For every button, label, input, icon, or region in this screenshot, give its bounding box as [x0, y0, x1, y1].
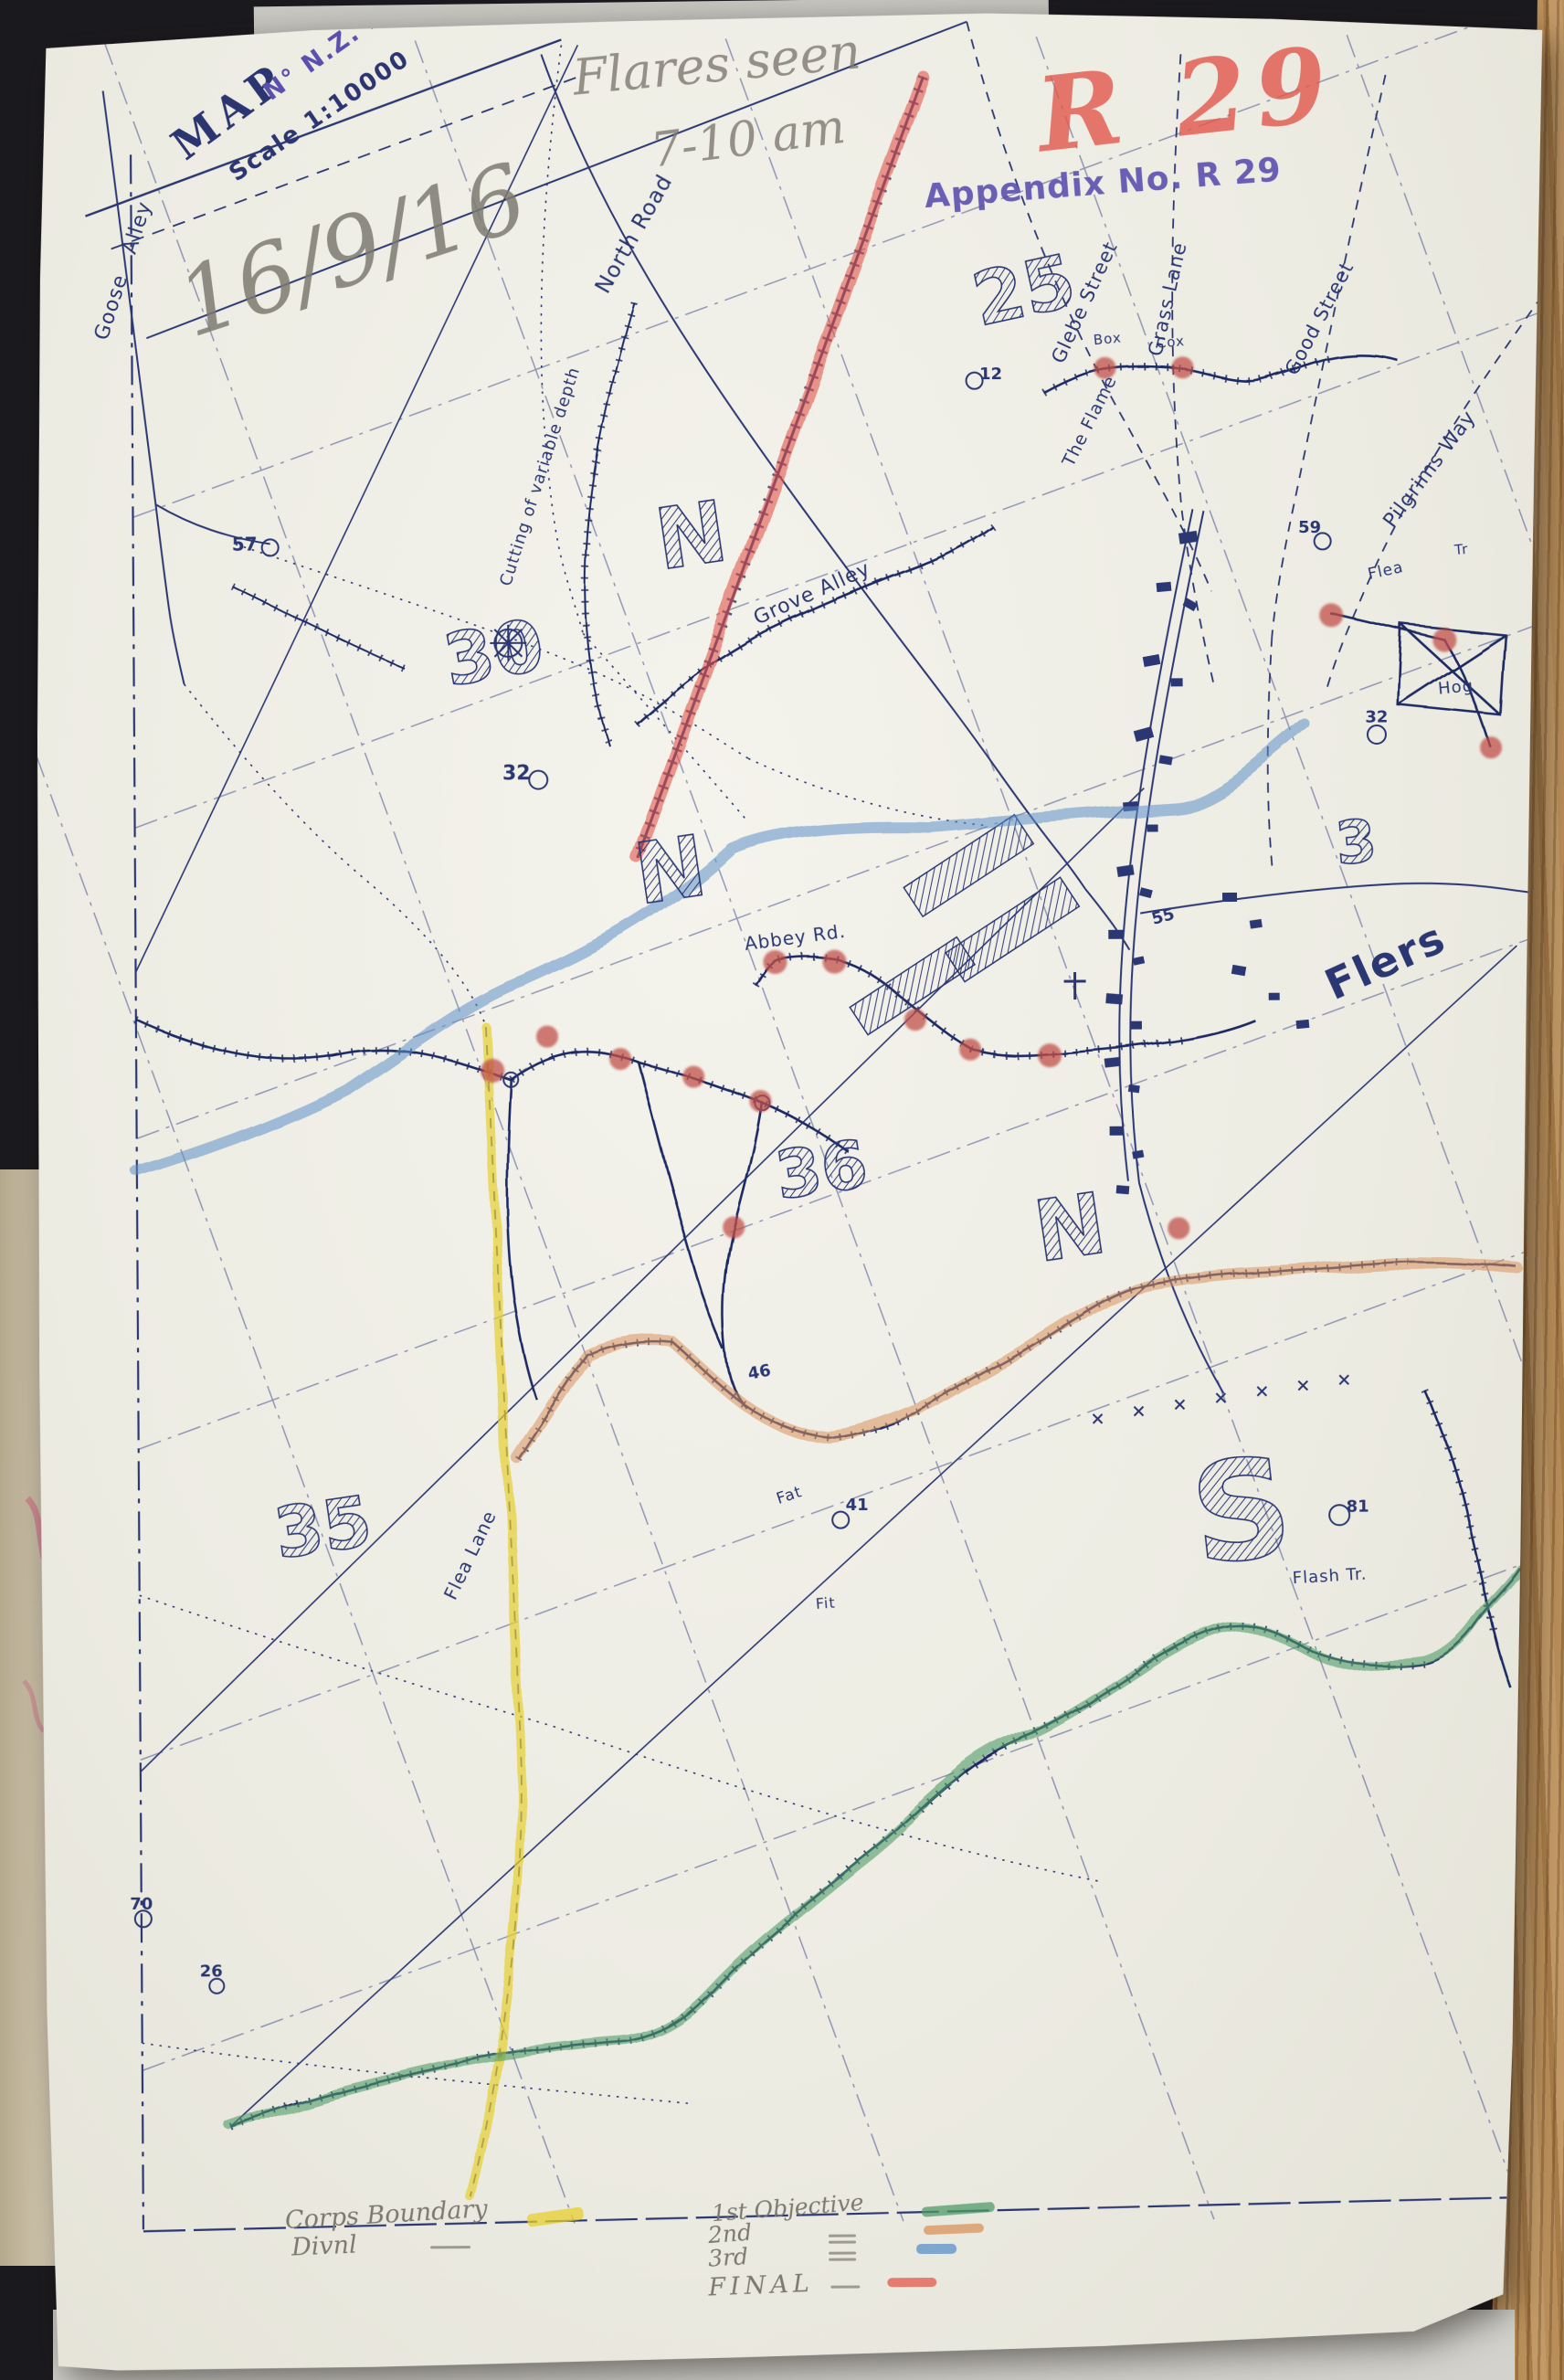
grid-mark-big-30: 30: [438, 604, 550, 703]
map-label-box: Box: [1093, 329, 1122, 348]
legend-divnl-dash: [430, 2246, 470, 2248]
map-label-cox: Cox: [1156, 333, 1186, 352]
map-sheet-wrap: 253035363SNNN GooseAlleyNorth RoadCuttin…: [0, 0, 1564, 2380]
map-label-hog: Hog: [1437, 676, 1474, 699]
map-label-num-81: 81: [1347, 1497, 1369, 1517]
orchards: [849, 814, 1080, 1034]
trench-lines: [132, 297, 1524, 2127]
legend-divnl-label: Divnl: [291, 2231, 357, 2262]
legend-final-swatch: [887, 2278, 936, 2287]
grid-mark-big-3: 3: [1333, 808, 1379, 879]
tracks: [130, 42, 1104, 2107]
grid-letters: 253035363SNNN: [261, 237, 1384, 1603]
legend-obj3-swatch: [916, 2244, 956, 2254]
map-label-fit: Fit: [815, 1593, 836, 1613]
map-sheet: 253035363SNNN GooseAlleyNorth RoadCuttin…: [0, 0, 1564, 2380]
flare-dots: [476, 354, 1505, 1243]
crayon-orange-line: [518, 1262, 1518, 1460]
crayon-yellow-line: [463, 1027, 524, 2196]
crayon-green-line: [227, 1569, 1525, 2127]
buildings: [1062, 530, 1311, 1195]
legend-obj3-label: 3rd: [707, 2243, 748, 2272]
map-label-num-12: 12: [979, 365, 1002, 384]
map-label-num-57: 57: [232, 533, 258, 555]
grid-mark-big-35: 35: [269, 1480, 377, 1574]
grid-mark-letter-n2: N: [629, 817, 713, 924]
map-label-num-32a: 32: [502, 762, 531, 785]
grid-mark-big-36: 36: [770, 1125, 872, 1214]
grid-mark-letter-n3: N: [1029, 1174, 1113, 1281]
map-label-num-46: 46: [746, 1361, 772, 1384]
legend-final-label: FINAL: [708, 2269, 815, 2302]
map-labels-layer: GooseAlleyNorth RoadCutting of variable …: [0, 0, 1557, 5]
map-label-num-41: 41: [846, 1496, 869, 1515]
map-drawing: 253035363SNNN: [0, 0, 1564, 2380]
map-label-num-26: 26: [200, 1962, 223, 1981]
crayon-red-railway: [633, 77, 928, 858]
grid-mark-letter-n1: N: [650, 482, 734, 589]
map-label-num-59: 59: [1298, 518, 1321, 537]
map-label-tr: Tr: [1453, 541, 1469, 558]
map-label-num-32b: 32: [1365, 707, 1388, 726]
barbed-wire: [1093, 1375, 1348, 1423]
legend-obj2-dash2: [829, 2241, 856, 2244]
legend-obj3-dash: [829, 2252, 856, 2255]
church-cross-icon: [1064, 972, 1086, 1000]
legend-obj3-dash2: [829, 2258, 856, 2261]
legend-obj2-dash: [829, 2235, 856, 2237]
map-label-num-70: 70: [130, 1895, 153, 1914]
photo-of-trench-map: 253035363SNNN GooseAlleyNorth RoadCuttin…: [0, 0, 1564, 2380]
grid-mark-letter-s: S: [1184, 1428, 1300, 1597]
legend-final-dash: [830, 2286, 860, 2289]
